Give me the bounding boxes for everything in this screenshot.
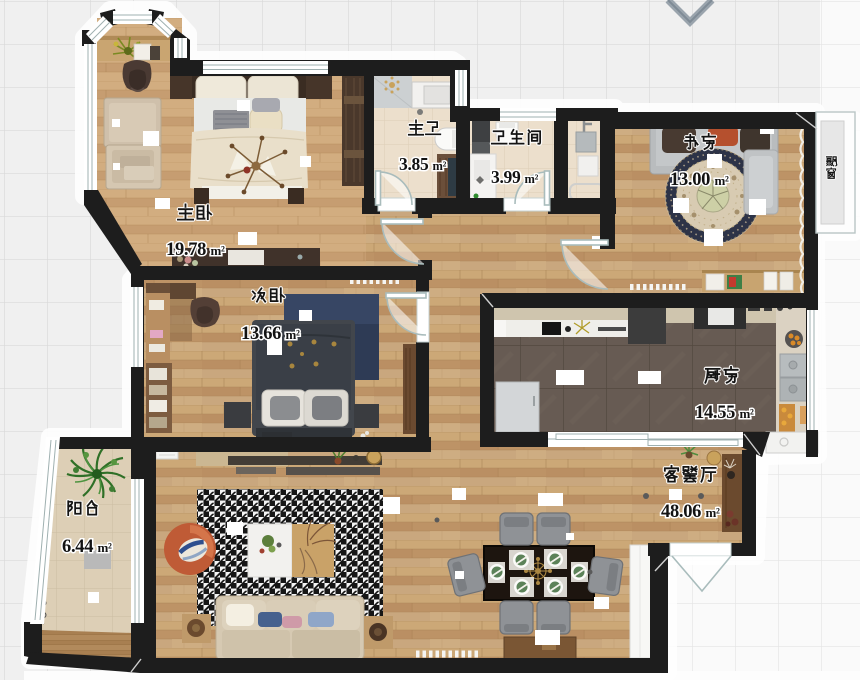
svg-text:6.44 m²: 6.44 m² xyxy=(62,537,112,557)
svg-text:13.00 m²: 13.00 m² xyxy=(670,170,729,190)
svg-text:19.78 m²: 19.78 m² xyxy=(166,240,225,260)
svg-text:48.06 m²: 48.06 m² xyxy=(661,502,720,522)
svg-text:14.55 m²: 14.55 m² xyxy=(695,403,754,423)
svg-text:13.66 m²: 13.66 m² xyxy=(241,324,300,344)
